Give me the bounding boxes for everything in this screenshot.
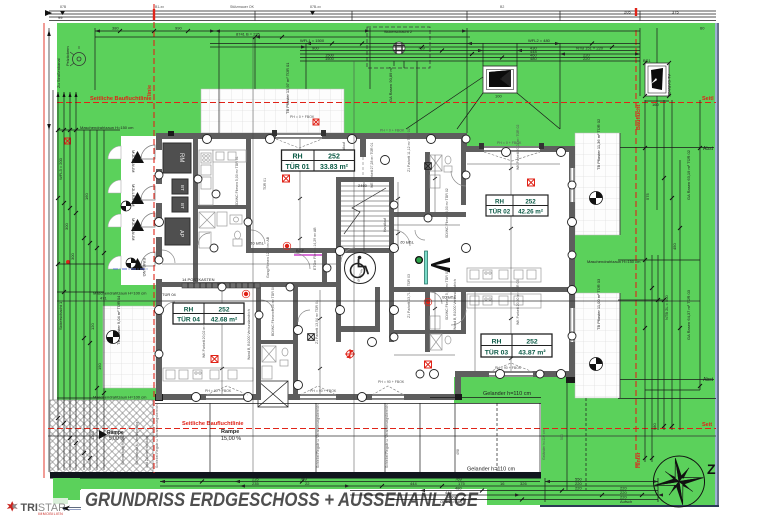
svg-text:100: 100	[495, 94, 502, 99]
svg-text:Wand B, B1000 Verbundanstrich: Wand B, B1000 Verbundanstrich	[453, 279, 457, 330]
svg-text:SD/WC Fliesen 5,00 m² TÜR 01: SD/WC Fliesen 5,00 m² TÜR 01	[235, 156, 239, 206]
svg-text:TÜR 03: TÜR 03	[485, 348, 509, 357]
svg-text:Seit: Seit	[702, 422, 712, 428]
svg-text:Gelander h=110 cm: Gelander h=110 cm	[467, 467, 515, 473]
svg-text:PH = 90 + FBOK: PH = 90 + FBOK	[205, 389, 232, 393]
svg-text:TÜR 02: TÜR 02	[489, 209, 511, 216]
svg-text:480: 480	[530, 56, 537, 61]
svg-text:Aufsch: Aufsch	[620, 499, 632, 504]
svg-text:Rampe: Rampe	[221, 429, 239, 435]
svg-text:Abst: Abst	[703, 377, 714, 383]
svg-text:IMMOBILIEN: IMMOBILIEN	[38, 512, 63, 516]
svg-text:980: 980	[652, 423, 657, 430]
svg-text:BS1: BS1	[643, 58, 651, 63]
svg-text:RH: RH	[495, 198, 504, 205]
svg-text:EINGANG: EINGANG	[142, 258, 147, 276]
svg-text:Wand B, B1000 Verbundanstrich: Wand B, B1000 Verbundanstrich	[247, 309, 251, 360]
svg-text:380: 380	[112, 26, 119, 31]
svg-text:252: 252	[525, 198, 536, 205]
svg-text:42.68 m²: 42.68 m²	[211, 317, 238, 324]
svg-text:MÜLLRAUM: MÜLLRAUM	[131, 184, 136, 206]
svg-text:Maschendrahtzaun H=150 cm: Maschendrahtzaun H=150 cm	[80, 125, 134, 130]
svg-text:Sickerschacht 2: Sickerschacht 2	[384, 29, 413, 34]
svg-text:2460: 2460	[358, 183, 368, 188]
svg-text:WFL1 = 1500: WFL1 = 1500	[300, 38, 325, 43]
svg-text:252: 252	[328, 154, 340, 161]
svg-text:WFL2 = 480: WFL2 = 480	[528, 38, 551, 43]
svg-text:PH = 90 + FBOK: PH = 90 + FBOK	[495, 366, 522, 370]
svg-text:575: 575	[645, 193, 650, 200]
svg-text:RH: RH	[184, 306, 194, 313]
svg-text:Sichtschutz N, Verankerung: Sichtschutz N, Verankerung	[135, 422, 139, 465]
svg-text:15,00 %: 15,00 %	[221, 436, 241, 442]
svg-text:Handlauf: Handlauf	[383, 218, 387, 232]
svg-text:NTB 151 = 220: NTB 151 = 220	[576, 46, 604, 51]
svg-text:5,00 %: 5,00 %	[109, 436, 125, 442]
svg-text:MÜLLRAUM: MÜLLRAUM	[131, 150, 136, 172]
svg-text:252: 252	[526, 338, 538, 345]
svg-text:Z1 Parkett 13,71 m² TÜR 03: Z1 Parkett 13,71 m² TÜR 03	[407, 274, 411, 318]
svg-text:150: 150	[97, 363, 102, 370]
svg-text:PH = 90 + FBOK: PH = 90 + FBOK	[310, 389, 337, 393]
svg-text:900: 900	[312, 46, 319, 51]
svg-text:BD/WC Fliesen 5,00 m² TÜR 04: BD/WC Fliesen 5,00 m² TÜR 04	[271, 286, 275, 336]
svg-text:Gang Fliesen 12,50 m² AB: Gang Fliesen 12,50 m² AB	[266, 236, 270, 278]
svg-text:Z1 Parkett 11,12 m² TÜR 02: Z1 Parkett 11,12 m² TÜR 02	[407, 128, 411, 172]
svg-text:Sickerschacht 1: Sickerschacht 1	[58, 301, 63, 330]
svg-text:TÜR 01: TÜR 01	[249, 241, 264, 246]
svg-text:GA Rasen 64,37 m² TÜR 03: GA Rasen 64,37 m² TÜR 03	[686, 289, 691, 340]
svg-text:60: 60	[700, 26, 705, 31]
svg-text:Bauflucht: Bauflucht	[636, 104, 642, 130]
svg-text:Abst: Abst	[703, 146, 714, 152]
svg-text:480: 480	[455, 486, 462, 491]
svg-text:Schiebel Regale u. Verankerung: Schiebel Regale u. Verankerungsbereich	[316, 405, 320, 468]
svg-text:99: 99	[58, 15, 63, 20]
svg-text:OFL 2 = 480: OFL 2 = 480	[440, 499, 463, 504]
svg-text:linie: linie	[147, 85, 153, 96]
svg-text:22: 22	[305, 481, 310, 486]
svg-text:8741 B = 235: 8741 B = 235	[236, 32, 261, 37]
svg-text:498: 498	[456, 449, 460, 455]
svg-text:WK Parkett 20,02 m² TÜR 02: WK Parkett 20,02 m² TÜR 02	[516, 124, 520, 170]
svg-text:Seitliche Baufluchtlinie: Seitliche Baufluchtlinie	[90, 96, 152, 102]
svg-text:444: 444	[410, 481, 417, 486]
svg-text:Z: Z	[707, 461, 716, 477]
svg-text:Hinter: Hinter	[636, 451, 642, 468]
svg-text:990: 990	[175, 26, 182, 31]
svg-text:TÜR 03: TÜR 03	[441, 295, 456, 300]
svg-text:GA Rasen 63,19 m² TÜR 02: GA Rasen 63,19 m² TÜR 02	[686, 149, 691, 200]
svg-text:TÜR 02: TÜR 02	[399, 240, 414, 245]
svg-text:SD/WC Fliesen 5,00 m² TÜR 02: SD/WC Fliesen 5,00 m² TÜR 02	[445, 188, 449, 238]
svg-text:TB Pflaster 11,36 m² TÜR 02: TB Pflaster 11,36 m² TÜR 02	[596, 118, 601, 170]
svg-text:TÜR 04: TÜR 04	[177, 315, 200, 324]
svg-text:205: 205	[624, 10, 631, 15]
svg-text:ETGm Fliesen 14,29 m² AB: ETGm Fliesen 14,29 m² AB	[313, 227, 317, 270]
svg-text:B1-xx: B1-xx	[155, 5, 164, 9]
svg-text:500: 500	[560, 434, 564, 440]
svg-text:GA Rasen 90,89 m²: GA Rasen 90,89 m²	[388, 66, 393, 102]
svg-text:Geländer h=110 cm: Geländer h=110 cm	[542, 429, 546, 460]
svg-text:Z1 Parkett 13,04 m² TÜR 04: Z1 Parkett 13,04 m² TÜR 04	[315, 300, 319, 344]
svg-text:RM: RM	[178, 153, 184, 162]
svg-text:AP: AP	[178, 230, 184, 238]
svg-text:B2: B2	[500, 5, 504, 9]
svg-text:42.26 m²: 42.26 m²	[518, 209, 543, 216]
svg-text:14 POSTKASTEN: 14 POSTKASTEN	[182, 277, 215, 282]
svg-text:TÜR 01: TÜR 01	[263, 178, 267, 190]
svg-text:TÜR 04: TÜR 04	[162, 292, 177, 297]
svg-text:WK Parkett 20,50 m² TÜR 03: WK Parkett 20,50 m² TÜR 03	[516, 279, 520, 325]
svg-text:375: 375	[672, 10, 679, 15]
svg-text:Pelzäckern: Pelzäckern	[65, 46, 70, 66]
svg-text:220: 220	[583, 56, 590, 61]
svg-text:769: 769	[418, 46, 425, 51]
svg-text:TÜR 01: TÜR 01	[285, 162, 309, 171]
svg-text:BT: BT	[180, 185, 185, 191]
svg-text:326: 326	[520, 481, 527, 486]
svg-text:BT: BT	[180, 203, 185, 209]
svg-text:Zu Straßenkanal: Zu Straßenkanal	[56, 58, 61, 88]
svg-text:Gelander h=110 cm: Gelander h=110 cm	[483, 391, 531, 397]
svg-text:TB Pflaster 11,00 m² TÜR 03: TB Pflaster 11,00 m² TÜR 03	[596, 278, 601, 330]
svg-text:PH = 0 + FBOK: PH = 0 + FBOK	[497, 141, 522, 145]
svg-text:16: 16	[500, 481, 505, 486]
svg-text:252: 252	[218, 306, 229, 313]
svg-text:PH = 90 + FBOK: PH = 90 + FBOK	[378, 380, 405, 384]
svg-text:AL GARAGE: AL GARAGE	[667, 74, 672, 97]
svg-text:NTB 2L = 500: NTB 2L = 500	[664, 295, 669, 320]
svg-text:43.87 m²: 43.87 m²	[518, 350, 546, 357]
svg-text:BGF: BGF	[296, 248, 305, 253]
svg-text:MÜLLRAUM: MÜLLRAUM	[131, 218, 136, 240]
svg-text:300: 300	[64, 223, 69, 230]
svg-text:PH = 0 + FBOK: PH = 0 + FBOK	[290, 115, 315, 119]
svg-text:1263: 1263	[90, 430, 95, 440]
svg-text:87B-xx: 87B-xx	[310, 5, 321, 9]
svg-text:120: 120	[90, 323, 95, 330]
svg-text:Maschendrahtzaun H=100 cm: Maschendrahtzaun H=100 cm	[93, 395, 147, 400]
svg-text:GRUNDRISS ERDGESCHOSS + AUSSEN: GRUNDRISS ERDGESCHOSS + AUSSENANLAGE	[85, 489, 479, 511]
svg-text:Stützmauer OK: Stützmauer OK	[230, 5, 255, 9]
svg-text:769: 769	[300, 477, 307, 482]
svg-text:450: 450	[672, 243, 677, 250]
svg-text:160: 160	[84, 193, 89, 200]
svg-text:und Zaunverkleidung: und Zaunverkleidung	[145, 435, 149, 468]
svg-text:WFL3 = 200: WFL3 = 200	[58, 157, 63, 180]
svg-text:1500: 1500	[325, 56, 335, 61]
svg-text:33.83 m²: 33.83 m²	[320, 164, 349, 171]
svg-text:TB Pflaster 13,97 m² TÜR 01: TB Pflaster 13,97 m² TÜR 01	[285, 62, 290, 114]
svg-text:471: 471	[100, 296, 107, 301]
svg-text:87B: 87B	[60, 5, 67, 9]
svg-text:PH = 0 + FBOK: PH = 0 + FBOK	[380, 129, 405, 133]
svg-text:Seitliche Baufluchtlinie: Seitliche Baufluchtlinie	[182, 421, 244, 427]
svg-text:RH: RH	[492, 338, 502, 345]
svg-text:300: 300	[70, 253, 75, 260]
svg-text:220: 220	[575, 486, 582, 491]
svg-text:Schiebel Regale u. Verankerung: Schiebel Regale u. Verankerungsbereich	[385, 405, 389, 468]
svg-text:Seitl: Seitl	[702, 96, 714, 102]
svg-text:Schiebel Regale u. Verankerung: Schiebel Regale u. Verankerungsbereich	[155, 405, 159, 468]
svg-text:WE Parkett 27,28 m² TÜR 01: WE Parkett 27,28 m² TÜR 01	[370, 142, 374, 188]
svg-text:235: 235	[252, 481, 259, 486]
svg-text:769: 769	[455, 477, 462, 482]
svg-text:RH: RH	[292, 154, 302, 161]
